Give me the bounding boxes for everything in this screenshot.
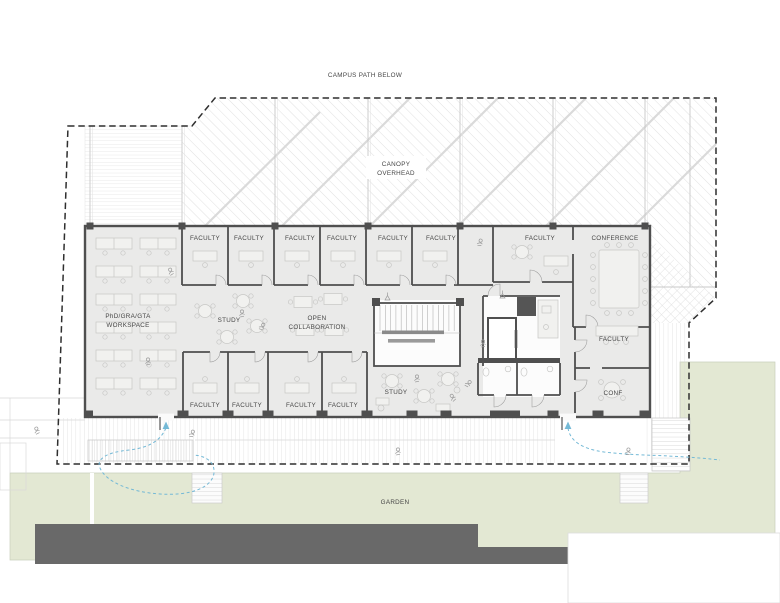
deck-stair-right: [652, 418, 690, 471]
garden-stair-left: [192, 473, 222, 503]
label-conf-right: CONF: [603, 390, 622, 397]
shaft: [517, 297, 536, 316]
floor-plan-canvas: CAMPUS PATH BELOWCANOPYOVERHEADFACULTYFA…: [0, 0, 780, 603]
label-canopy-line2: OVERHEAD: [377, 170, 415, 177]
conference-table: [591, 243, 648, 316]
label-open-line1: OPEN: [307, 315, 326, 322]
label-conference: CONFERENCE: [591, 235, 638, 242]
label-phd-line2: WORKSPACE: [106, 322, 149, 329]
label-campus-path: CAMPUS PATH BELOW: [328, 72, 402, 79]
label-faculty-right: FACULTY: [599, 336, 629, 343]
label-faculty-top-4: FACULTY: [327, 235, 357, 242]
label-faculty-bot-4: FACULTY: [328, 402, 358, 409]
label-faculty-top-5: FACULTY: [378, 235, 408, 242]
label-faculty-top-1: FACULTY: [190, 235, 220, 242]
lower-terrace-block: [568, 533, 780, 603]
label-faculty-top-7: FACULTY: [525, 235, 555, 242]
label-faculty-top-6: FACULTY: [426, 235, 456, 242]
label-study-1: STUDY: [218, 317, 241, 324]
label-canopy-line1: CANOPY: [382, 161, 411, 168]
label-faculty-top-2: FACULTY: [234, 235, 264, 242]
floor-plan-svg: CAMPUS PATH BELOWCANOPYOVERHEADFACULTYFA…: [0, 0, 780, 603]
label-faculty-bot-3: FACULTY: [286, 402, 316, 409]
garden-stair-mid: [620, 473, 648, 503]
label-faculty-bot-2: FACULTY: [232, 402, 262, 409]
label-open-line2: COLLABORATION: [289, 324, 346, 331]
label-phd-line1: PhD/GRA/GTA: [105, 313, 151, 320]
label-study-2: STUDY: [385, 389, 408, 396]
label-faculty-top-3: FACULTY: [285, 235, 315, 242]
deck-stair-left: [88, 440, 193, 461]
label-faculty-bot-1: FACULTY: [190, 402, 220, 409]
label-garden: GARDEN: [381, 499, 410, 506]
building: [85, 223, 651, 431]
elevator: [488, 318, 516, 360]
